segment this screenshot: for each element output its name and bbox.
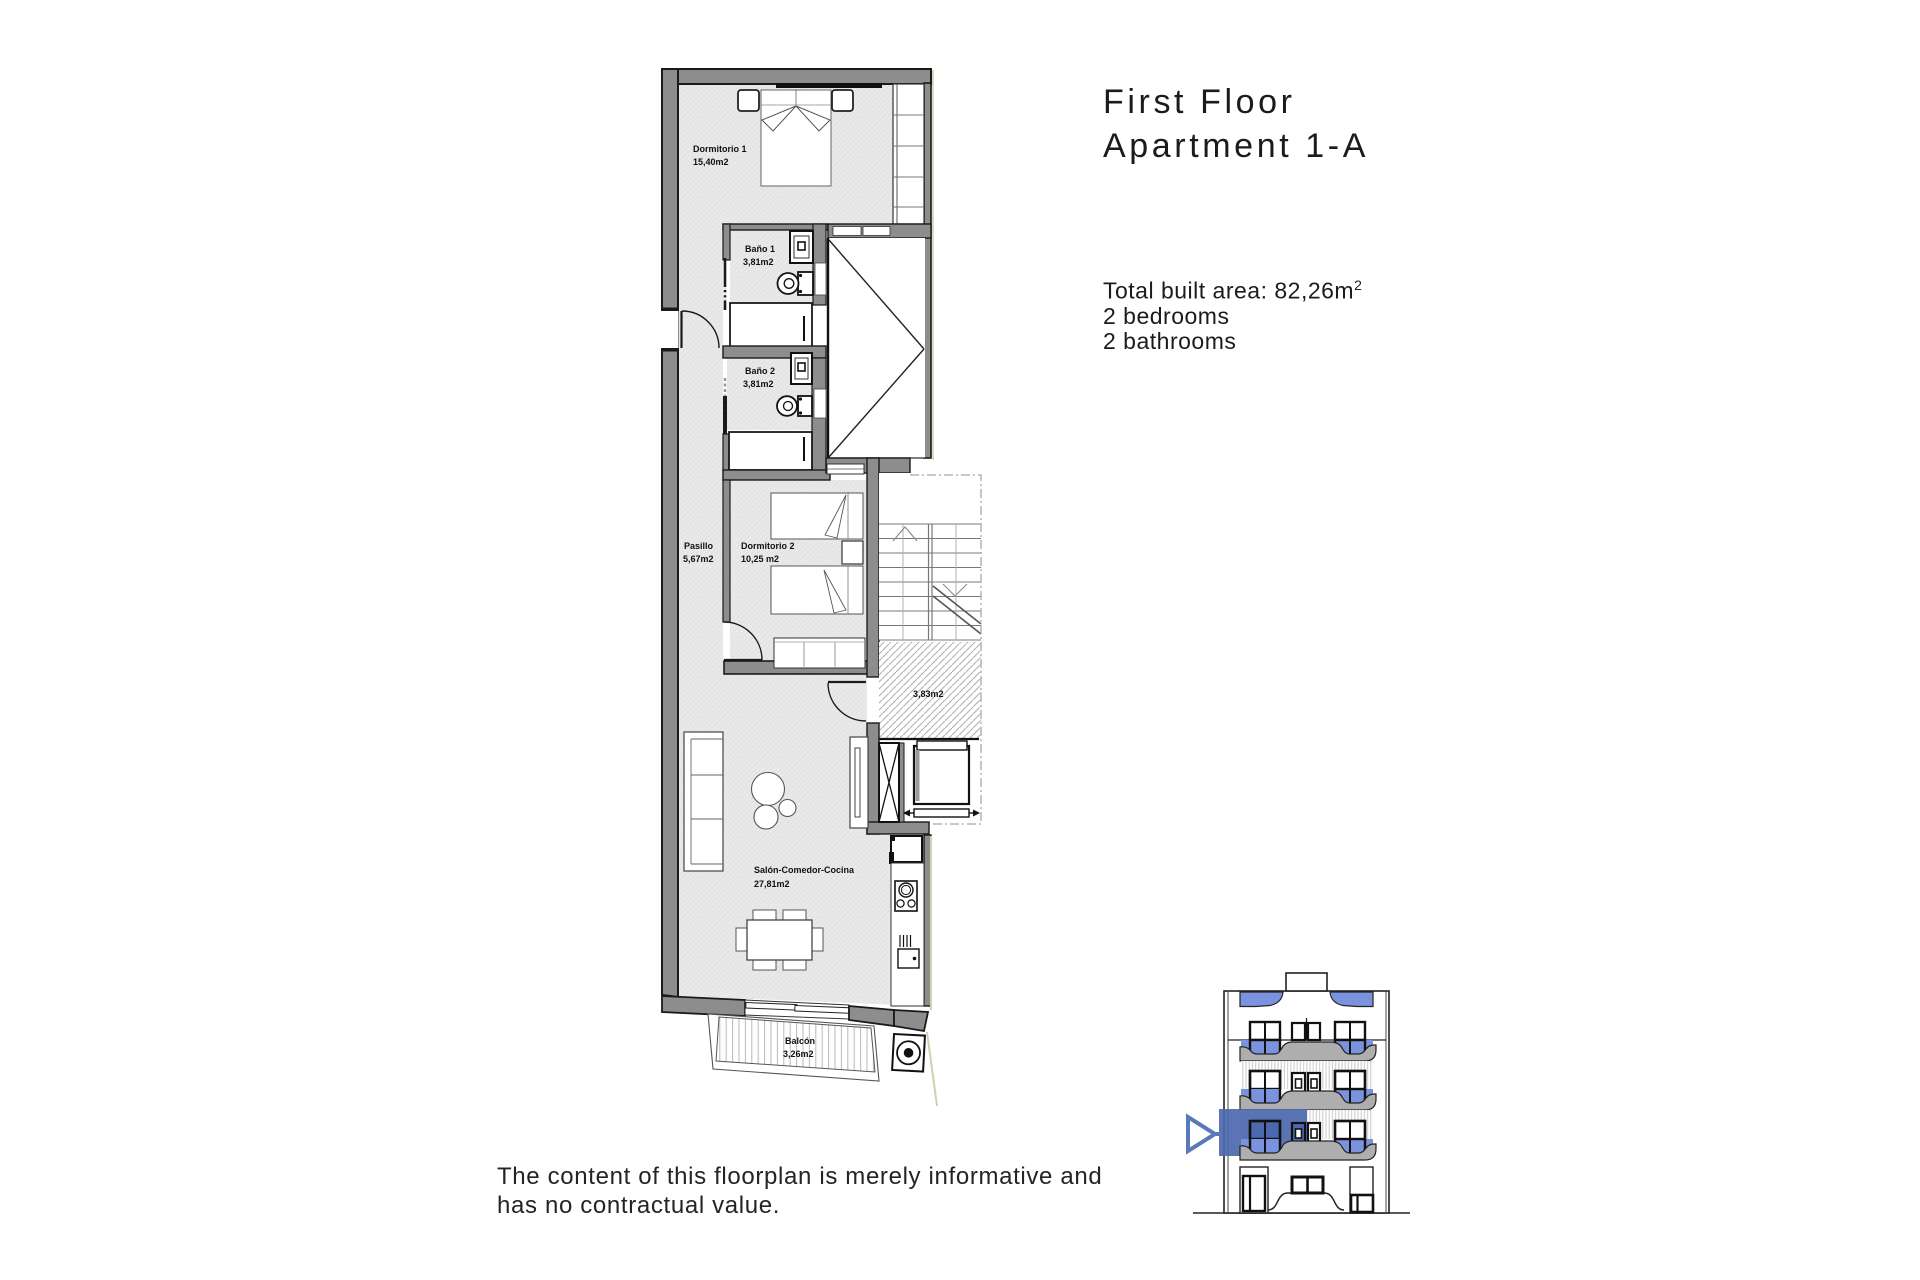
svg-text:3,81m2: 3,81m2 bbox=[743, 379, 774, 389]
svg-text:Dormitorio 2: Dormitorio 2 bbox=[741, 541, 795, 551]
svg-text:3,81m2: 3,81m2 bbox=[743, 257, 774, 267]
svg-text:Pasillo: Pasillo bbox=[684, 541, 714, 551]
svg-text:Baño 1: Baño 1 bbox=[745, 244, 775, 254]
svg-text:27,81m2: 27,81m2 bbox=[754, 879, 790, 889]
svg-text:3,26m2: 3,26m2 bbox=[783, 1049, 814, 1059]
svg-text:15,40m2: 15,40m2 bbox=[693, 157, 729, 167]
svg-text:Dormitorio 1: Dormitorio 1 bbox=[693, 144, 747, 154]
svg-text:Salón-Comedor-Cocina: Salón-Comedor-Cocina bbox=[754, 865, 855, 875]
svg-text:Baño 2: Baño 2 bbox=[745, 366, 775, 376]
svg-text:Balcón: Balcón bbox=[785, 1036, 815, 1046]
svg-text:3,83m2: 3,83m2 bbox=[913, 689, 944, 699]
svg-text:5,67m2: 5,67m2 bbox=[683, 554, 714, 564]
svg-text:10,25 m2: 10,25 m2 bbox=[741, 554, 779, 564]
